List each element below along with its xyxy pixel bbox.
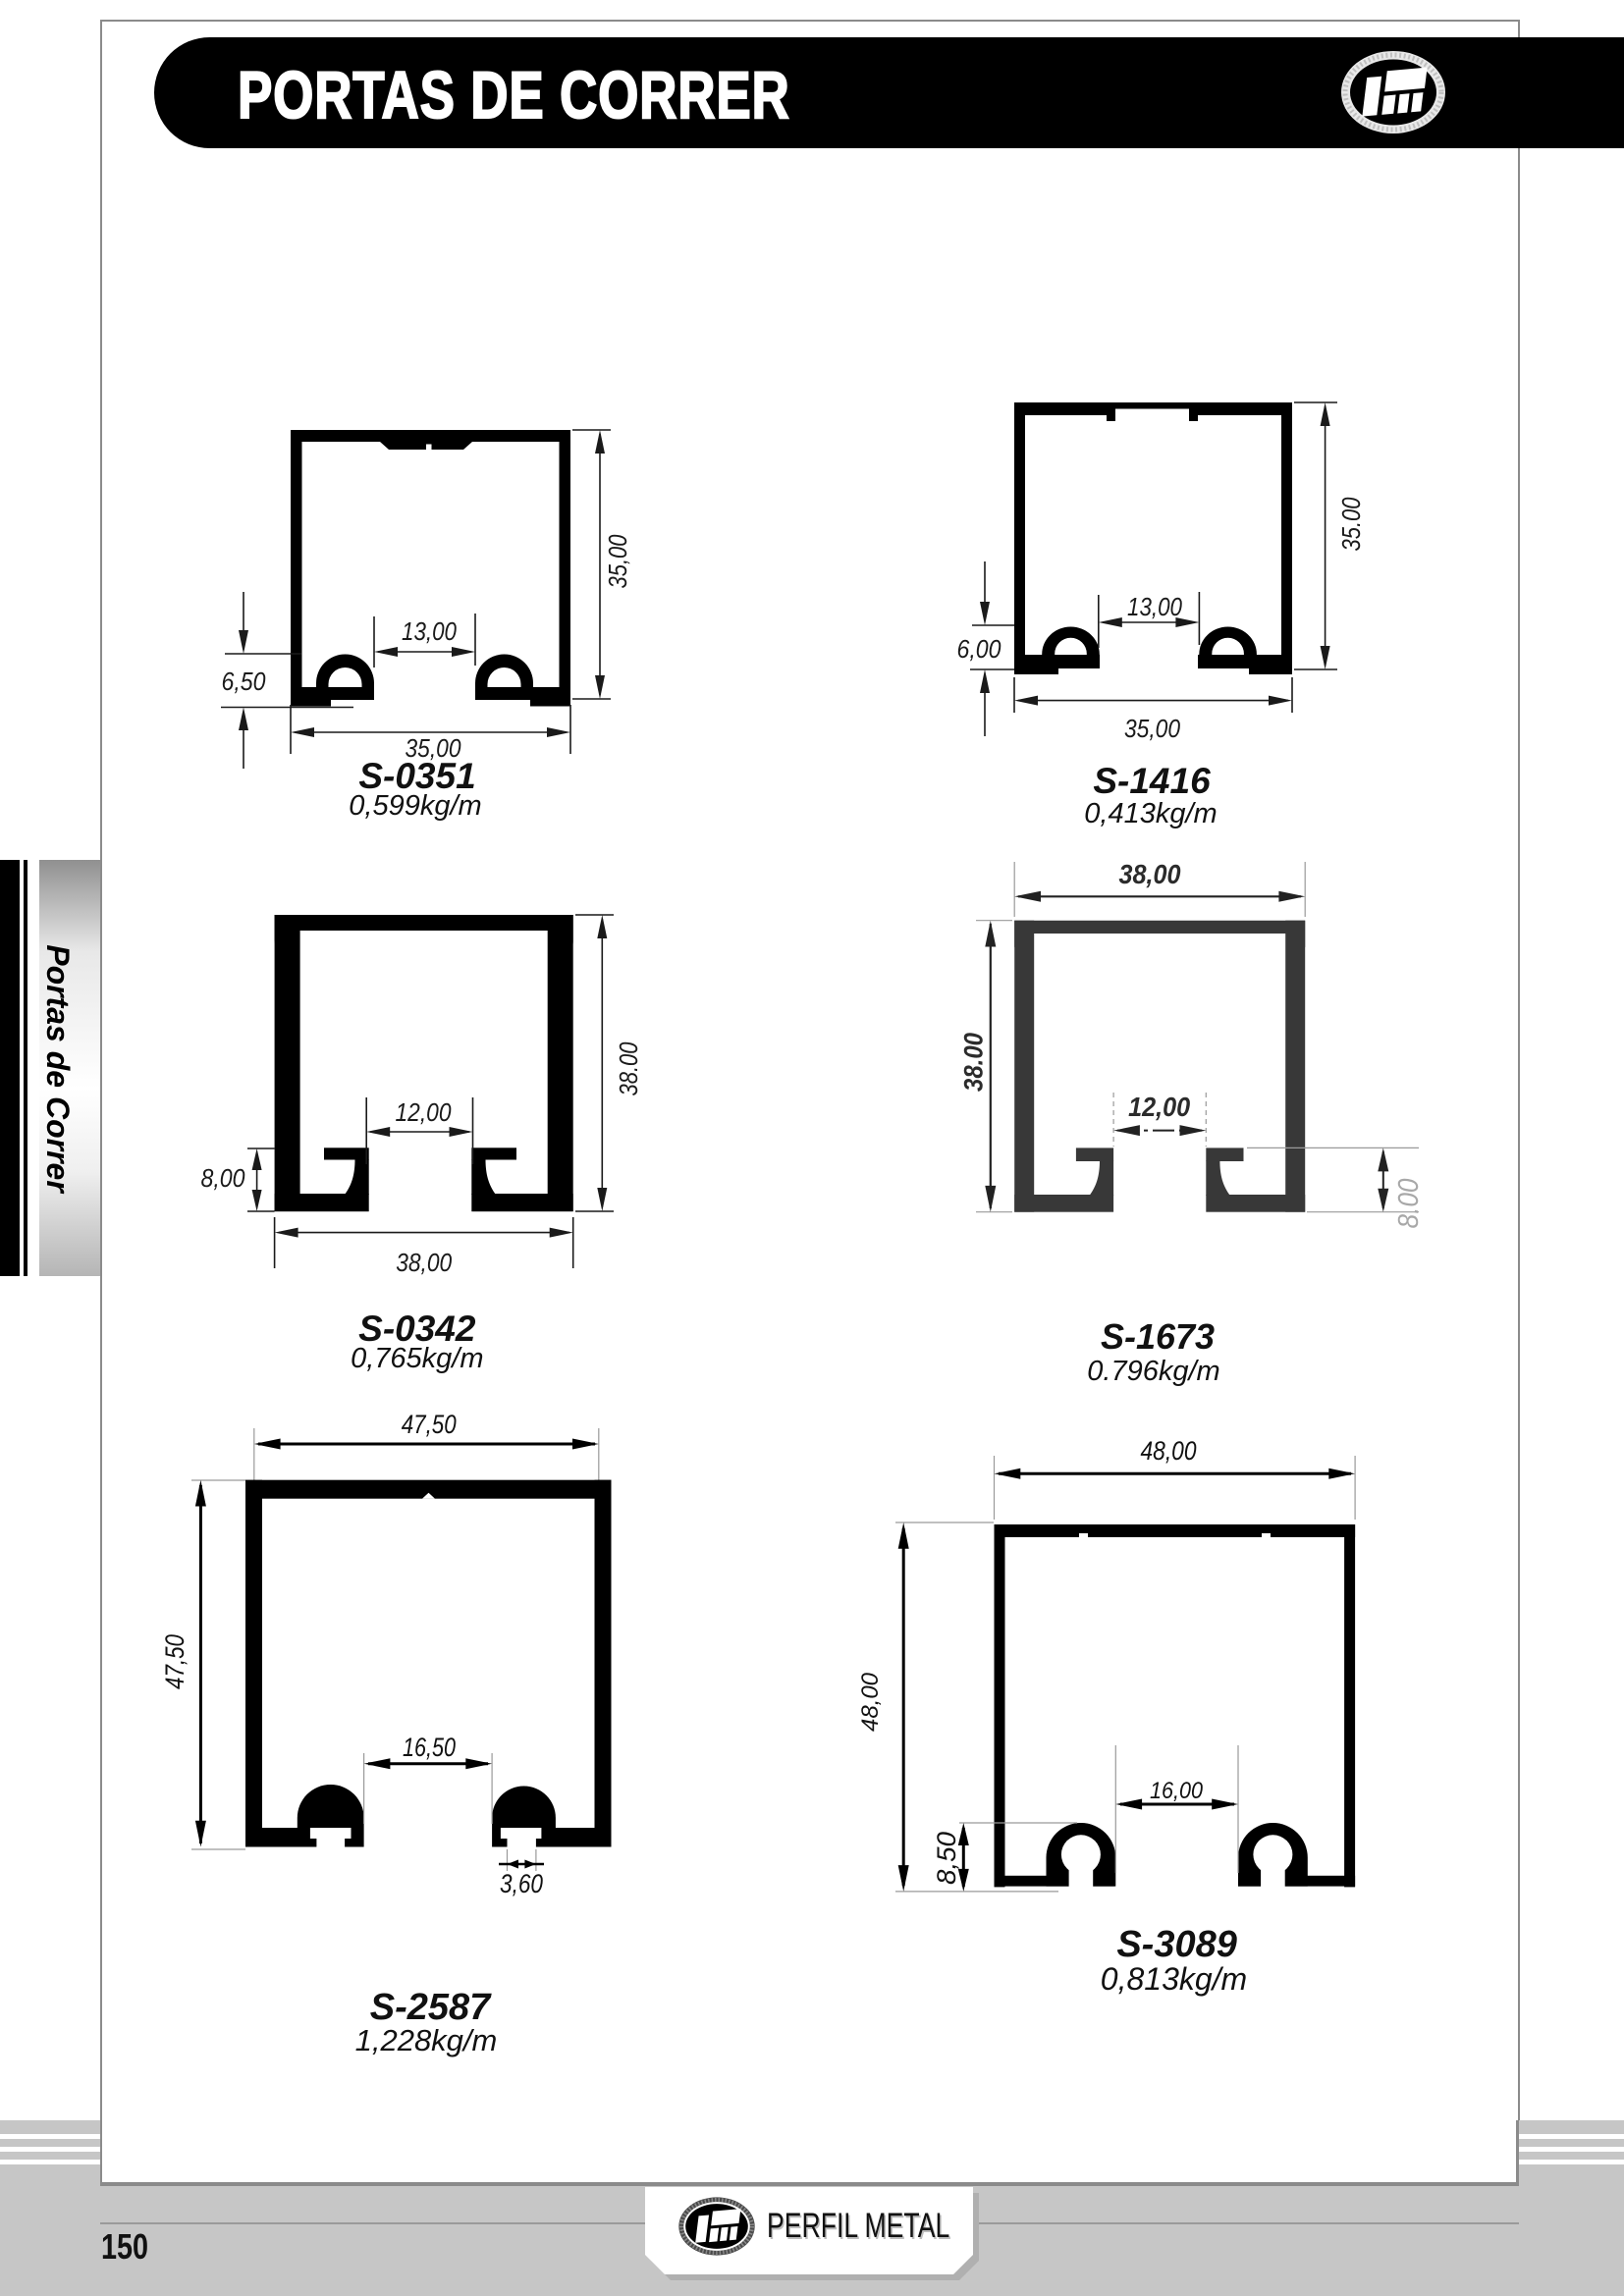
svg-text:8,00: 8,00 — [201, 1163, 245, 1193]
svg-text:13,00: 13,00 — [402, 616, 457, 646]
svg-text:S-1673: S-1673 — [1101, 1316, 1215, 1357]
svg-text:35,00: 35,00 — [603, 534, 632, 588]
svg-text:12,00: 12,00 — [396, 1097, 452, 1127]
svg-text:47,50: 47,50 — [160, 1634, 189, 1689]
svg-text:8,50: 8,50 — [932, 1832, 961, 1885]
svg-text:0,599kg/m: 0,599kg/m — [349, 790, 481, 822]
svg-text:35,00: 35,00 — [1124, 714, 1180, 743]
svg-text:1,228kg/m: 1,228kg/m — [355, 2023, 498, 2057]
svg-text:38.00: 38.00 — [614, 1041, 643, 1095]
svg-text:38.00: 38.00 — [959, 1033, 989, 1092]
svg-text:6,00: 6,00 — [957, 634, 1001, 664]
svg-text:S-2587: S-2587 — [370, 1987, 492, 2028]
svg-text:0,413kg/m: 0,413kg/m — [1084, 798, 1217, 829]
svg-text:48,00: 48,00 — [1141, 1436, 1197, 1466]
svg-text:0.796kg/m: 0.796kg/m — [1087, 1356, 1219, 1387]
svg-text:S-3089: S-3089 — [1116, 1924, 1237, 1965]
svg-text:6,50: 6,50 — [222, 667, 266, 696]
svg-text:8.00: 8.00 — [1393, 1179, 1425, 1229]
svg-text:35.00: 35.00 — [1336, 497, 1366, 551]
svg-text:0,765kg/m: 0,765kg/m — [351, 1343, 483, 1374]
svg-text:13,00: 13,00 — [1127, 592, 1182, 621]
svg-text:16,00: 16,00 — [1150, 1778, 1204, 1804]
svg-text:12,00: 12,00 — [1128, 1092, 1190, 1122]
svg-text:48,00: 48,00 — [857, 1672, 884, 1732]
svg-text:38,00: 38,00 — [1119, 859, 1181, 889]
svg-text:16,50: 16,50 — [403, 1733, 456, 1762]
svg-text:38,00: 38,00 — [396, 1248, 452, 1277]
svg-text:S-1416: S-1416 — [1093, 761, 1211, 801]
svg-text:3,60: 3,60 — [500, 1869, 543, 1898]
svg-text:0,813kg/m: 0,813kg/m — [1101, 1961, 1247, 1997]
svg-text:47,50: 47,50 — [402, 1410, 457, 1439]
